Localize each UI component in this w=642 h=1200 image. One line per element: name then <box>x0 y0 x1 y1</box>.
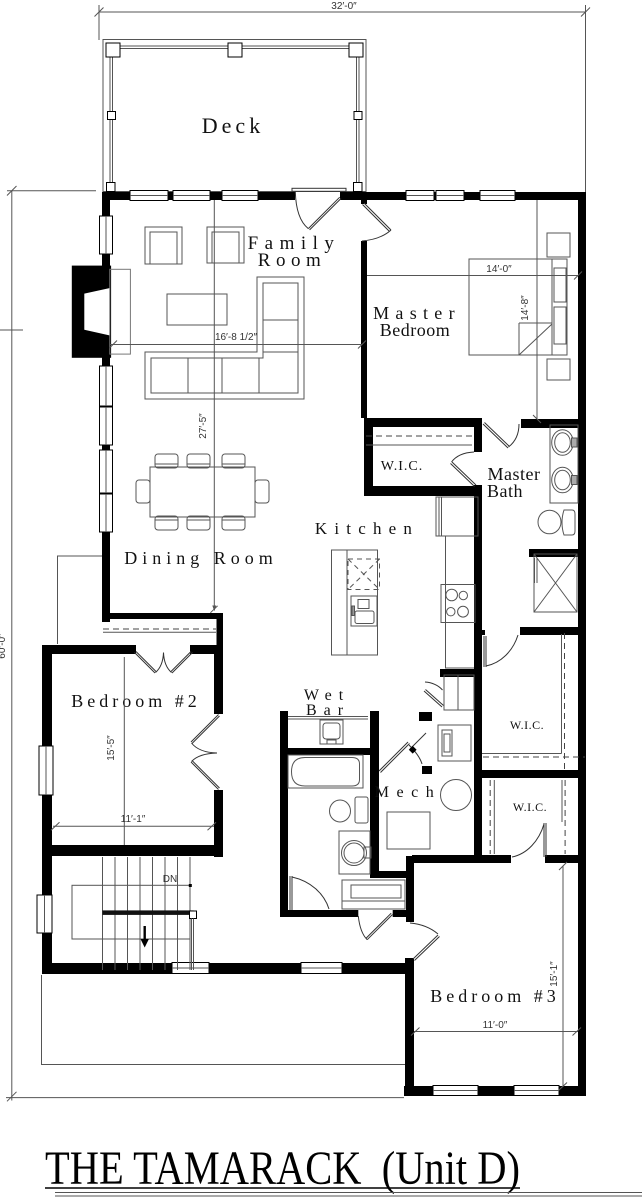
svg-text:27′-5″: 27′-5″ <box>198 413 209 439</box>
svg-text:Bedroom: Bedroom <box>380 320 451 340</box>
svg-text:Bath: Bath <box>487 481 523 501</box>
svg-text:Bar: Bar <box>306 702 350 719</box>
svg-text:11′-0″: 11′-0″ <box>483 1020 508 1031</box>
svg-text:15′-5″: 15′-5″ <box>106 735 117 761</box>
svg-text:DN: DN <box>163 874 177 885</box>
svg-text:32′-0″: 32′-0″ <box>331 1 357 12</box>
svg-text:Dining Room: Dining Room <box>124 548 278 568</box>
svg-text:Bedroom #2: Bedroom #2 <box>71 691 201 711</box>
svg-text:Bedroom #3: Bedroom #3 <box>430 986 560 1006</box>
svg-text:W.I.C.: W.I.C. <box>513 800 547 814</box>
svg-text:60′-0″: 60′-0″ <box>0 633 8 659</box>
svg-text:THE TAMARACK (Unit D): THE TAMARACK (Unit D) <box>45 1142 520 1195</box>
svg-text:W.I.C.: W.I.C. <box>381 459 423 474</box>
svg-text:Mech: Mech <box>375 784 441 801</box>
svg-text:14′-8″: 14′-8″ <box>520 295 531 321</box>
svg-text:W.I.C.: W.I.C. <box>510 718 544 732</box>
svg-text:Room: Room <box>258 250 326 271</box>
svg-text:Deck: Deck <box>202 113 264 138</box>
svg-text:11′-1″: 11′-1″ <box>121 814 146 825</box>
svg-text:16′-8 1/2″: 16′-8 1/2″ <box>215 332 258 343</box>
svg-text:Kitchen: Kitchen <box>315 519 419 538</box>
svg-text:15′-1″: 15′-1″ <box>549 961 560 987</box>
svg-text:14′-0″: 14′-0″ <box>486 264 512 275</box>
